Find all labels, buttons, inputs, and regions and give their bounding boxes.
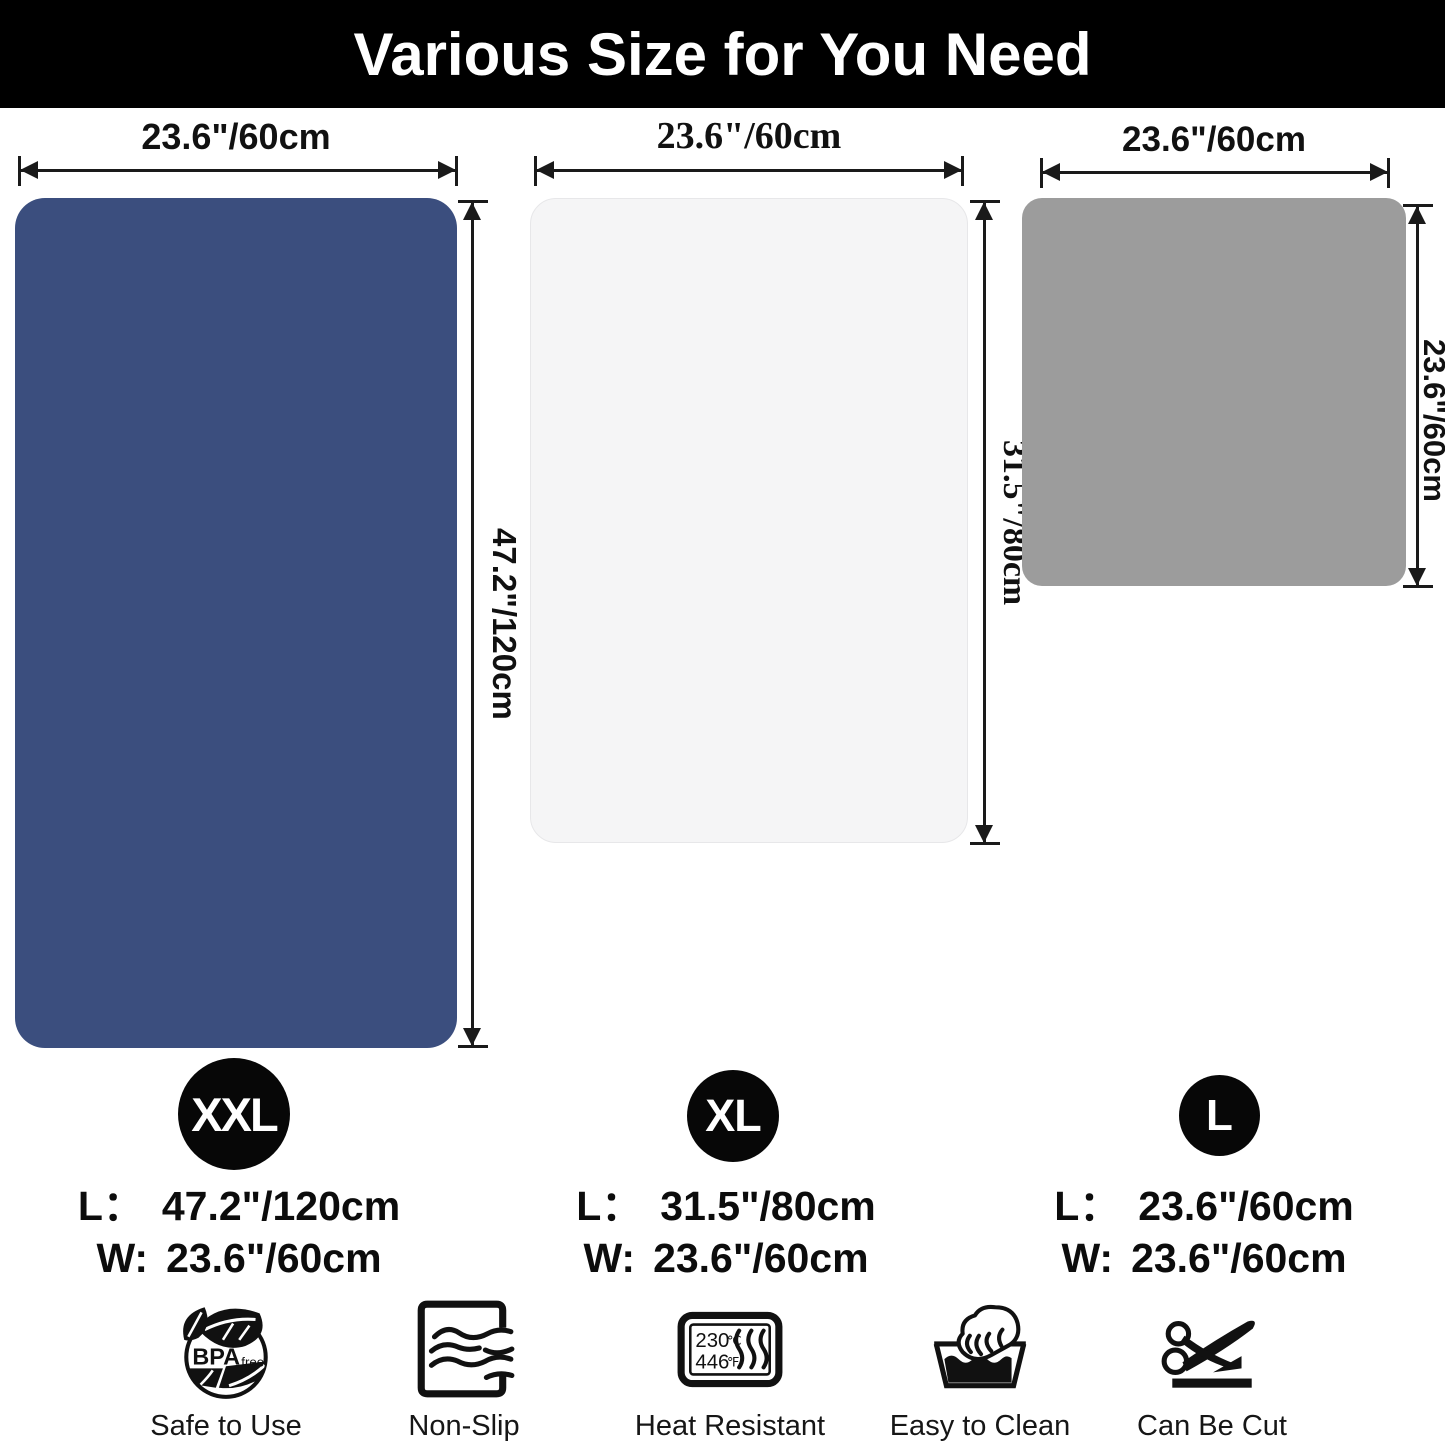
title-banner: Various Size for You Need xyxy=(0,0,1445,108)
length-value: 31.5"/80cm xyxy=(660,1183,876,1229)
length-value: 47.2"/120cm xyxy=(162,1183,400,1229)
feature-non-slip: Non-Slip xyxy=(346,1292,582,1443)
length-value: 23.6"/60cm xyxy=(1138,1183,1354,1229)
arrow-line xyxy=(471,200,474,1048)
size-badge-xxl: XXL xyxy=(178,1058,290,1170)
arrow-line xyxy=(1040,171,1390,174)
arrowhead-left xyxy=(20,161,38,179)
length-label: L： xyxy=(576,1183,642,1229)
page-title: Various Size for You Need xyxy=(354,20,1092,89)
xxl-spec-column: L：47.2"/120cm W:23.6"/60cm xyxy=(0,1180,478,1284)
free-text: free xyxy=(241,1354,264,1369)
xl-spec-column: L：31.5"/80cm W:23.6"/60cm xyxy=(492,1180,960,1284)
l-width-spec: W:23.6"/60cm xyxy=(968,1232,1440,1284)
arrowhead-down xyxy=(463,1028,481,1046)
arrowhead-right xyxy=(438,161,456,179)
l-spec-column: L：23.6"/60cm W:23.6"/60cm xyxy=(968,1180,1440,1284)
mat-xl-swatch xyxy=(530,198,968,843)
width-value: 23.6"/60cm xyxy=(653,1235,869,1281)
easy-to-clean-icon xyxy=(862,1292,1098,1406)
xl-width-dimension-label: 23.6"/60cm xyxy=(530,114,968,158)
l-width-dimension-label: 23.6"/60cm xyxy=(1022,120,1406,160)
arrowhead-up xyxy=(463,202,481,220)
l-width-dimension-arrow xyxy=(1040,158,1390,188)
xxl-width-dimension-label: 23.6"/60cm xyxy=(15,116,457,158)
badge-text: XL xyxy=(705,1090,761,1142)
arrow-line xyxy=(18,169,458,172)
size-badge-xl: XL xyxy=(687,1070,779,1162)
width-value: 23.6"/60cm xyxy=(166,1235,382,1281)
arrow-line xyxy=(534,169,964,172)
product-size-infographic: Various Size for You Need 23.6"/60cm 47.… xyxy=(0,0,1445,1445)
width-label: W: xyxy=(1061,1235,1113,1281)
feature-label: Easy to Clean xyxy=(862,1410,1098,1443)
size-badge-l: L xyxy=(1179,1075,1260,1156)
xl-width-dimension-arrow xyxy=(534,156,964,186)
l-height-dimension-label: 23.6"/60cm xyxy=(1414,250,1445,590)
feature-label: Safe to Use xyxy=(108,1410,344,1443)
arrowhead-left xyxy=(536,161,554,179)
arrowhead-up xyxy=(1408,206,1426,224)
heat-resistant-icon: 230 ℃ 446 ℉ xyxy=(612,1292,848,1406)
xxl-width-dimension-arrow xyxy=(18,156,458,186)
feature-can-be-cut: Can Be Cut xyxy=(1094,1292,1330,1443)
feature-label: Heat Resistant xyxy=(612,1410,848,1443)
feature-safe-to-use: BPA free Safe to Use xyxy=(108,1292,344,1443)
l-length-spec: L：23.6"/60cm xyxy=(968,1180,1440,1232)
temp-c-value: 230 xyxy=(695,1330,729,1352)
xxl-height-dimension-label: 47.2"/120cm xyxy=(484,200,524,1048)
length-label: L： xyxy=(78,1183,144,1229)
xl-width-spec: W:23.6"/60cm xyxy=(492,1232,960,1284)
feature-heat-resistant: 230 ℃ 446 ℉ Heat Resistant xyxy=(612,1292,848,1443)
width-label: W: xyxy=(583,1235,635,1281)
xxl-width-spec: W:23.6"/60cm xyxy=(0,1232,478,1284)
arrowhead-down xyxy=(975,825,993,843)
feature-label: Can Be Cut xyxy=(1094,1410,1330,1443)
badge-text: XXL xyxy=(191,1087,276,1142)
xxl-length-spec: L：47.2"/120cm xyxy=(0,1180,478,1232)
length-label: L： xyxy=(1054,1183,1120,1229)
badge-text: L xyxy=(1206,1091,1233,1141)
arrowhead-right xyxy=(1370,163,1388,181)
mat-l-swatch xyxy=(1022,198,1406,586)
bpa-text: BPA xyxy=(192,1343,240,1369)
bpa-free-icon: BPA free xyxy=(108,1292,344,1406)
arrowhead-right xyxy=(944,161,962,179)
temp-f-value: 446 xyxy=(695,1351,729,1373)
non-slip-icon xyxy=(346,1292,582,1406)
feature-label: Non-Slip xyxy=(346,1410,582,1443)
feature-easy-to-clean: Easy to Clean xyxy=(862,1292,1098,1443)
can-be-cut-icon xyxy=(1094,1292,1330,1406)
arrow-line xyxy=(983,200,986,845)
width-label: W: xyxy=(96,1235,148,1281)
mat-xxl-swatch xyxy=(15,198,457,1048)
arrowhead-left xyxy=(1042,163,1060,181)
width-value: 23.6"/60cm xyxy=(1131,1235,1347,1281)
xl-length-spec: L：31.5"/80cm xyxy=(492,1180,960,1232)
arrowhead-up xyxy=(975,202,993,220)
